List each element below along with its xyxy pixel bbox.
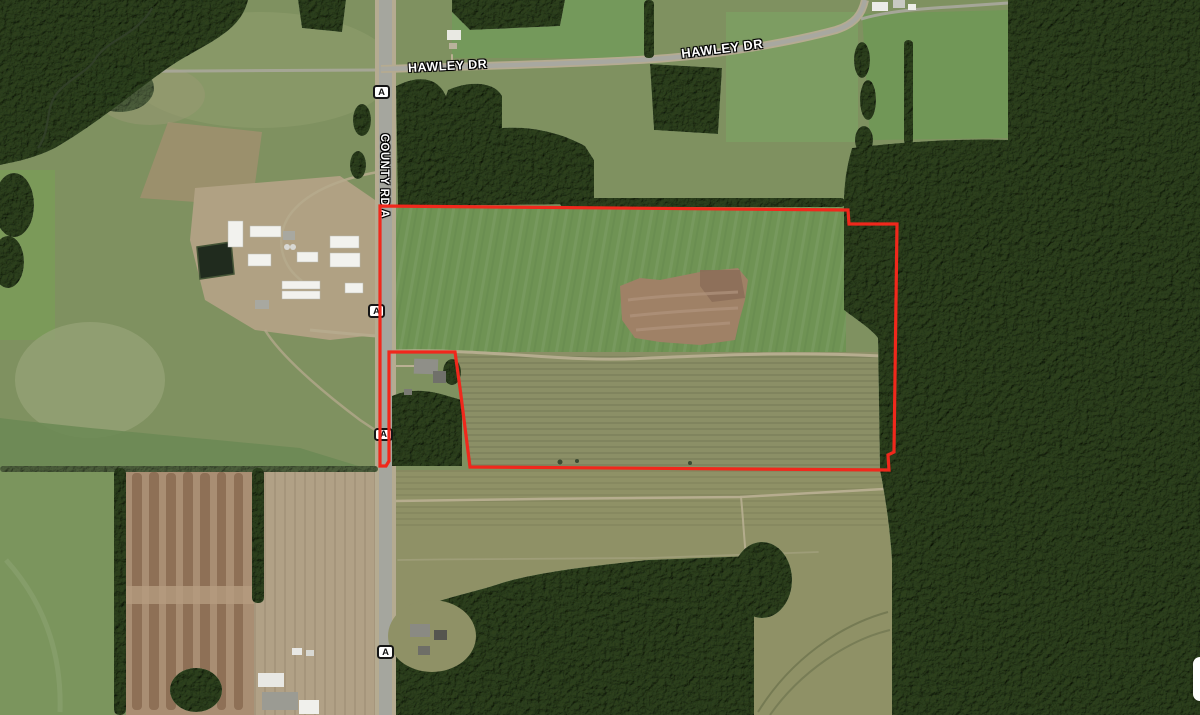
satellite-imagery-layer [0, 0, 1200, 715]
parcel-fields [394, 206, 884, 468]
county-road-shield-icon: A [374, 428, 393, 441]
map-control-button-partial[interactable] [1193, 657, 1200, 701]
road-label-county-rd-a: COUNTY RD A [378, 132, 390, 220]
forest-clearing [388, 600, 476, 672]
county-road-shield-icon: A [368, 304, 385, 318]
county-road-shield-icon: A [377, 645, 394, 659]
satellite-map-viewport[interactable]: HAWLEY DR HAWLEY DR COUNTY RD A A A A A [0, 0, 1200, 715]
county-road-shield-icon: A [373, 85, 390, 99]
